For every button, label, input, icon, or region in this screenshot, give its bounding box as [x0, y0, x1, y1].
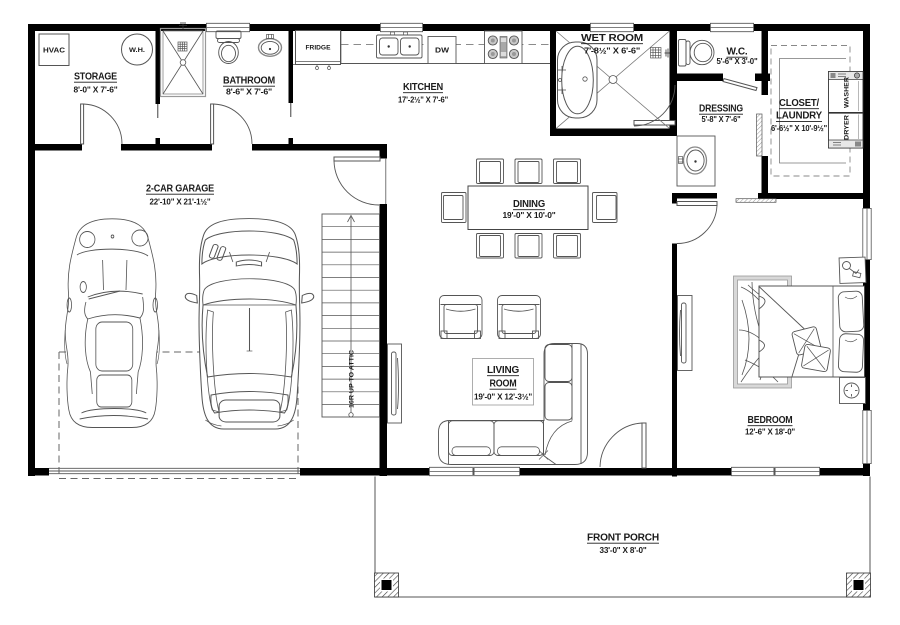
svg-text:STORAGE: STORAGE: [74, 72, 117, 83]
svg-text:16R UP TO ATTIC: 16R UP TO ATTIC: [349, 350, 356, 408]
svg-text:KITCHEN: KITCHEN: [403, 82, 443, 93]
svg-text:17'-2½" X 7'-6": 17'-2½" X 7'-6": [398, 95, 448, 105]
svg-text:33'-0" X 8'-0": 33'-0" X 8'-0": [600, 545, 647, 555]
svg-text:8'-6" X 7'-6": 8'-6" X 7'-6": [226, 87, 272, 97]
svg-text:CLOSET/: CLOSET/: [779, 98, 819, 109]
svg-text:DRYER: DRYER: [844, 115, 851, 140]
svg-text:DRESSING: DRESSING: [699, 104, 743, 115]
svg-text:12'-6" X 18'-0": 12'-6" X 18'-0": [745, 427, 795, 437]
svg-text:ROOM: ROOM: [490, 379, 517, 390]
svg-text:5'-8" X 7'-6": 5'-8" X 7'-6": [702, 114, 741, 124]
svg-text:LAUNDRY: LAUNDRY: [776, 111, 823, 122]
svg-text:BATHROOM: BATHROOM: [223, 76, 275, 87]
svg-text:W.H.: W.H.: [129, 47, 145, 54]
svg-text:19'-0" X 10'-0": 19'-0" X 10'-0": [503, 210, 556, 220]
svg-text:WASHER: WASHER: [844, 77, 851, 108]
svg-text:WET ROOM: WET ROOM: [581, 33, 643, 44]
svg-text:5'-6" X 3'-0": 5'-6" X 3'-0": [717, 56, 758, 66]
svg-text:DW: DW: [435, 48, 449, 55]
svg-text:HVAC: HVAC: [43, 48, 65, 55]
svg-text:BEDROOM: BEDROOM: [748, 415, 793, 426]
svg-text:19'-0" X 12'-3½": 19'-0" X 12'-3½": [474, 392, 532, 402]
svg-text:8'-0" X 7'-6": 8'-0" X 7'-6": [74, 85, 118, 95]
svg-text:FRIDGE: FRIDGE: [306, 45, 332, 52]
svg-text:FRONT PORCH: FRONT PORCH: [587, 533, 659, 544]
svg-text:22'-10" X 21'-1½": 22'-10" X 21'-1½": [150, 197, 211, 207]
svg-text:DINING: DINING: [513, 199, 545, 210]
svg-text:6'-6½" X 10'-9½": 6'-6½" X 10'-9½": [771, 123, 827, 133]
svg-text:2-CAR GARAGE: 2-CAR GARAGE: [146, 184, 214, 195]
svg-text:7'-8½" X 6'-6": 7'-8½" X 6'-6": [584, 46, 640, 56]
svg-text:LIVING: LIVING: [487, 365, 519, 376]
